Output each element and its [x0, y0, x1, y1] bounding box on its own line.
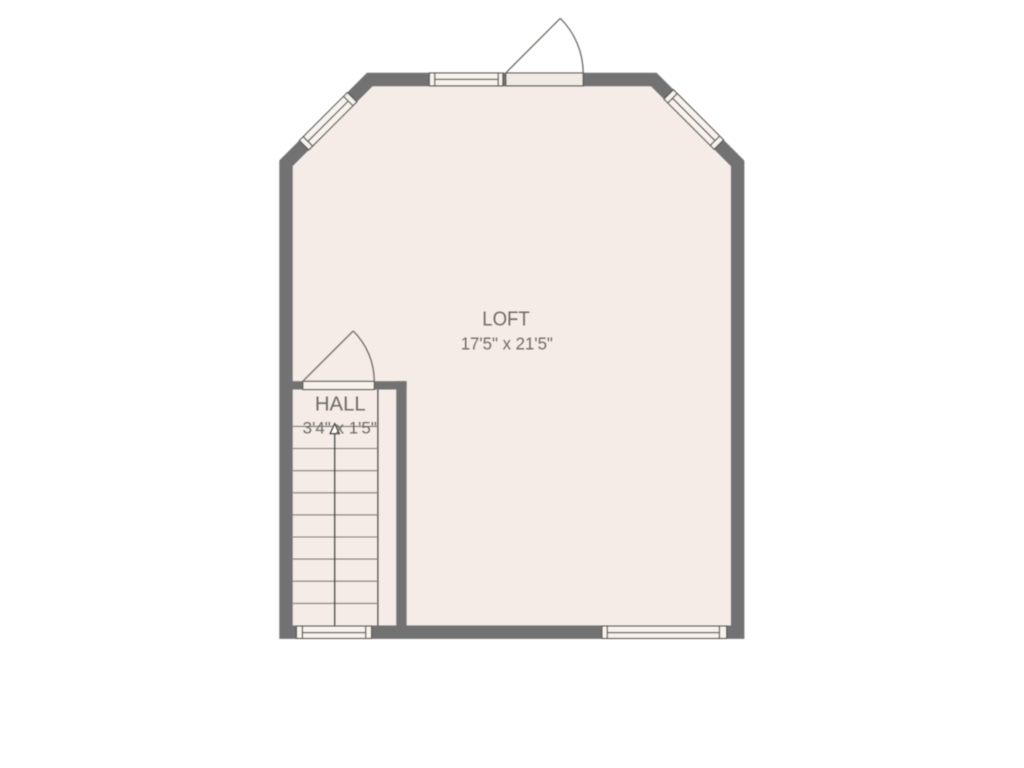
svg-text:3'4" x 1'5": 3'4" x 1'5": [303, 419, 377, 438]
svg-text:17'5" x 21'5": 17'5" x 21'5": [461, 334, 553, 354]
svg-text:HALL: HALL: [315, 394, 366, 416]
svg-text:LOFT: LOFT: [482, 308, 530, 331]
